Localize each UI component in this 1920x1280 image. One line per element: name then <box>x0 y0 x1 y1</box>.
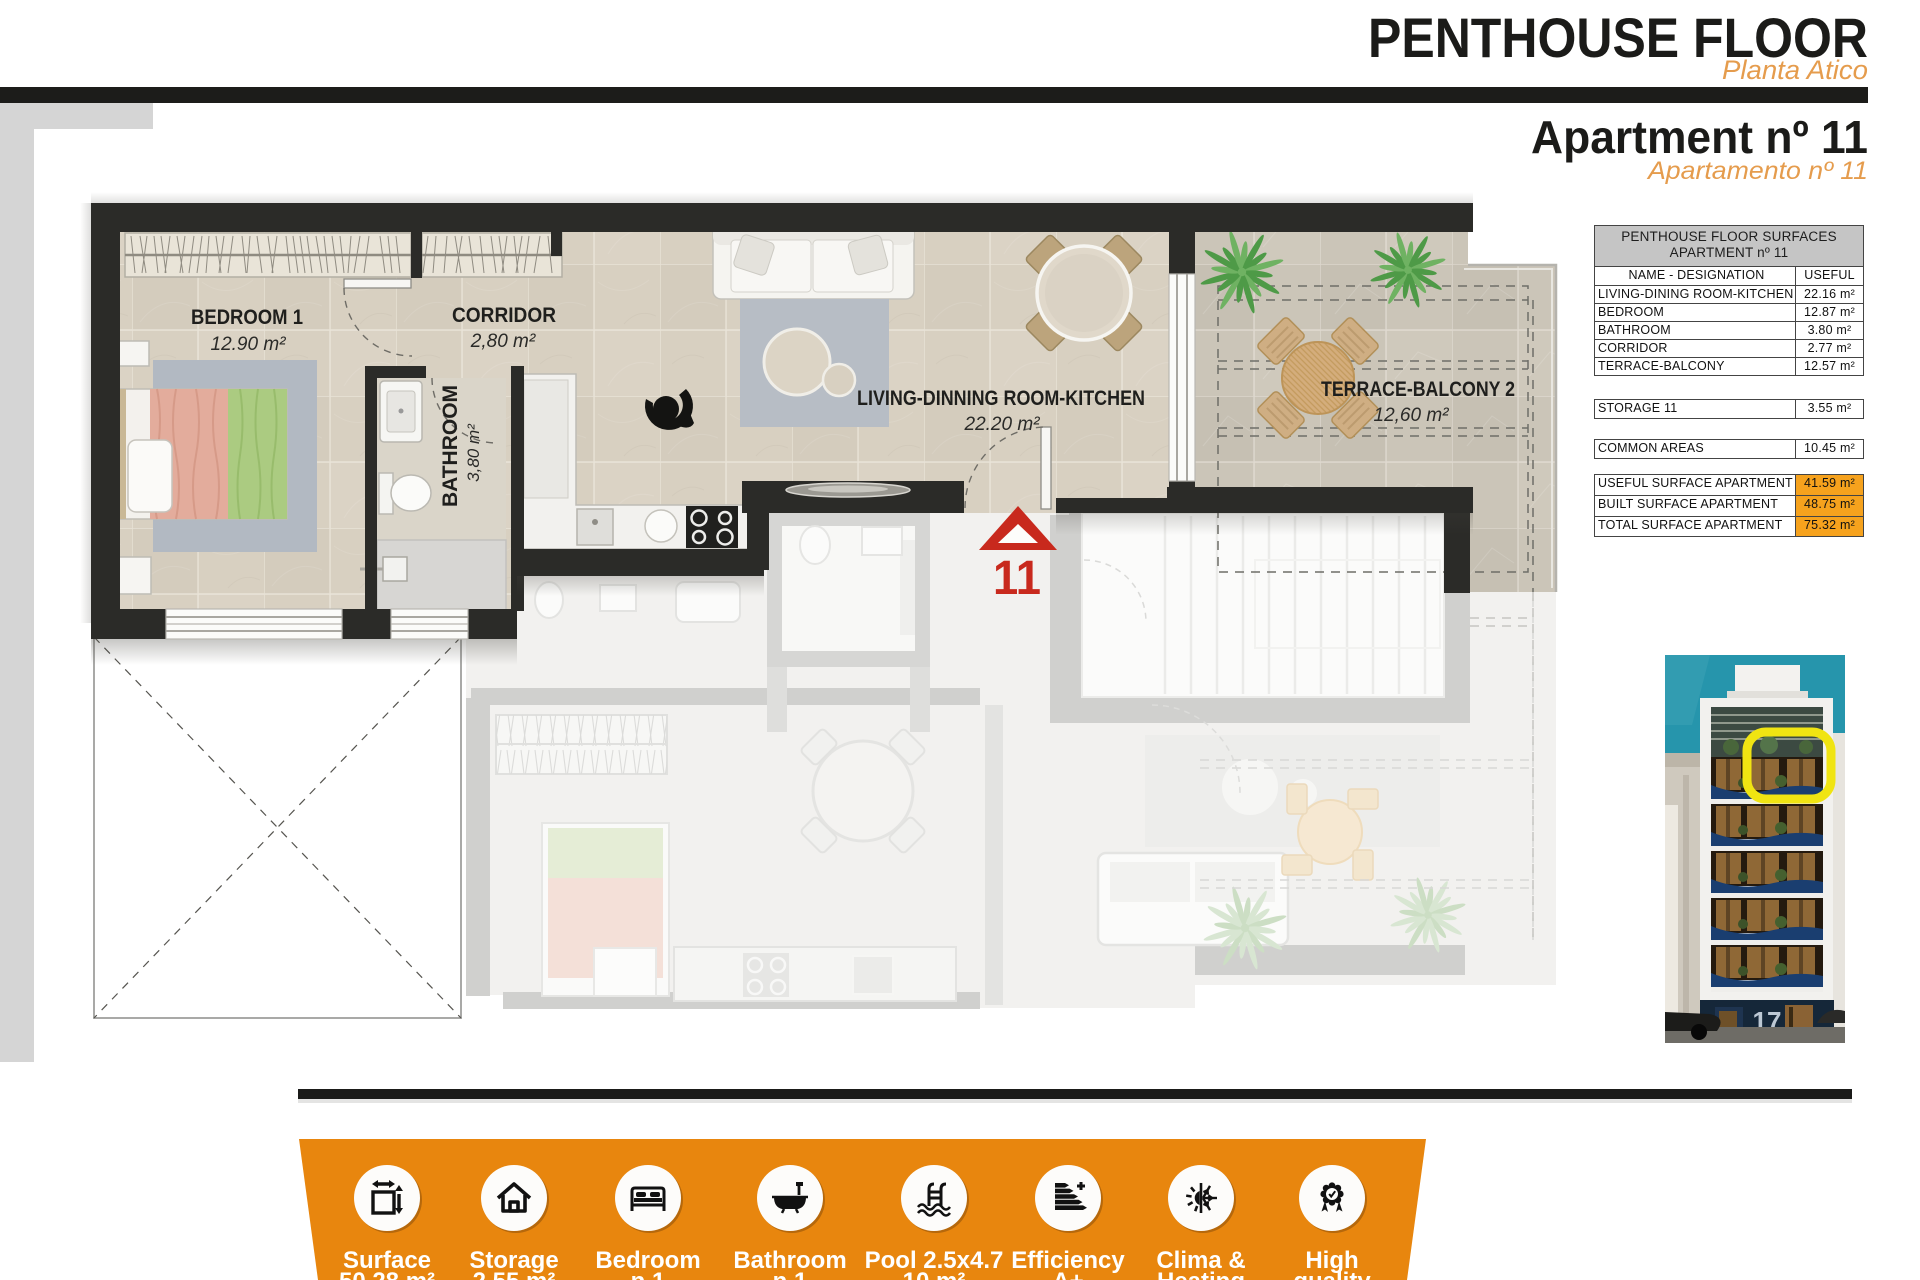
svg-text:Heating: Heating <box>1157 1268 1245 1280</box>
svg-text:Planta Atico: Planta Atico <box>1722 55 1868 85</box>
svg-text:50.28 m²: 50.28 m² <box>339 1268 435 1280</box>
svg-text:Apartment nº 11: Apartment nº 11 <box>1531 111 1868 163</box>
svg-text:n.1: n.1 <box>773 1268 808 1280</box>
svg-text:quality: quality <box>1293 1268 1371 1280</box>
svg-text:12,60 m²: 12,60 m² <box>1374 405 1450 426</box>
svg-text:2,80 m²: 2,80 m² <box>470 331 536 352</box>
svg-text:BEDROOM 1: BEDROOM 1 <box>191 306 303 329</box>
svg-text:2.55 m²: 2.55 m² <box>473 1268 556 1280</box>
svg-text:A+: A+ <box>1052 1268 1083 1280</box>
svg-text:Apartamento nº 11: Apartamento nº 11 <box>1646 157 1868 185</box>
svg-text:LIVING-DINNING ROOM-KITCHEN: LIVING-DINNING ROOM-KITCHEN <box>857 387 1145 410</box>
svg-text:CORRIDOR: CORRIDOR <box>452 304 556 327</box>
svg-text:12.90 m²: 12.90 m² <box>211 334 287 355</box>
svg-text:n.1: n.1 <box>631 1268 666 1280</box>
svg-text:BATHROOM: BATHROOM <box>439 385 462 507</box>
svg-text:22.20 m²: 22.20 m² <box>964 414 1041 435</box>
svg-text:10 m²: 10 m² <box>903 1268 966 1280</box>
svg-text:11: 11 <box>993 552 1041 605</box>
svg-text:3,80 m²: 3,80 m² <box>464 423 483 482</box>
svg-text:TERRACE-BALCONY 2: TERRACE-BALCONY 2 <box>1321 378 1515 401</box>
